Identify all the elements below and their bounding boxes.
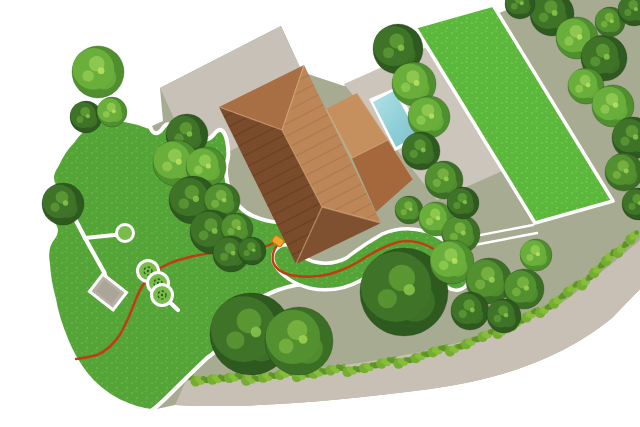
tree: [265, 307, 333, 375]
tree: [70, 101, 102, 133]
garden-map: [0, 0, 640, 427]
lawn-feature-circle: [117, 225, 134, 242]
tree: [520, 239, 552, 271]
tree: [97, 97, 127, 127]
tree: [447, 187, 479, 219]
garden-plan-stage: [0, 0, 640, 427]
tree: [42, 183, 84, 225]
bush-center-dot: [161, 294, 163, 296]
hedge-shrub: [634, 230, 639, 235]
tree: [238, 237, 266, 265]
tree: [487, 299, 521, 333]
tree: [605, 153, 640, 191]
tree: [451, 292, 489, 330]
map-layers: [42, 0, 640, 411]
tree: [408, 96, 450, 138]
hedge-shrub: [342, 364, 346, 368]
bush-center-dot: [147, 270, 149, 272]
tree: [72, 46, 124, 98]
